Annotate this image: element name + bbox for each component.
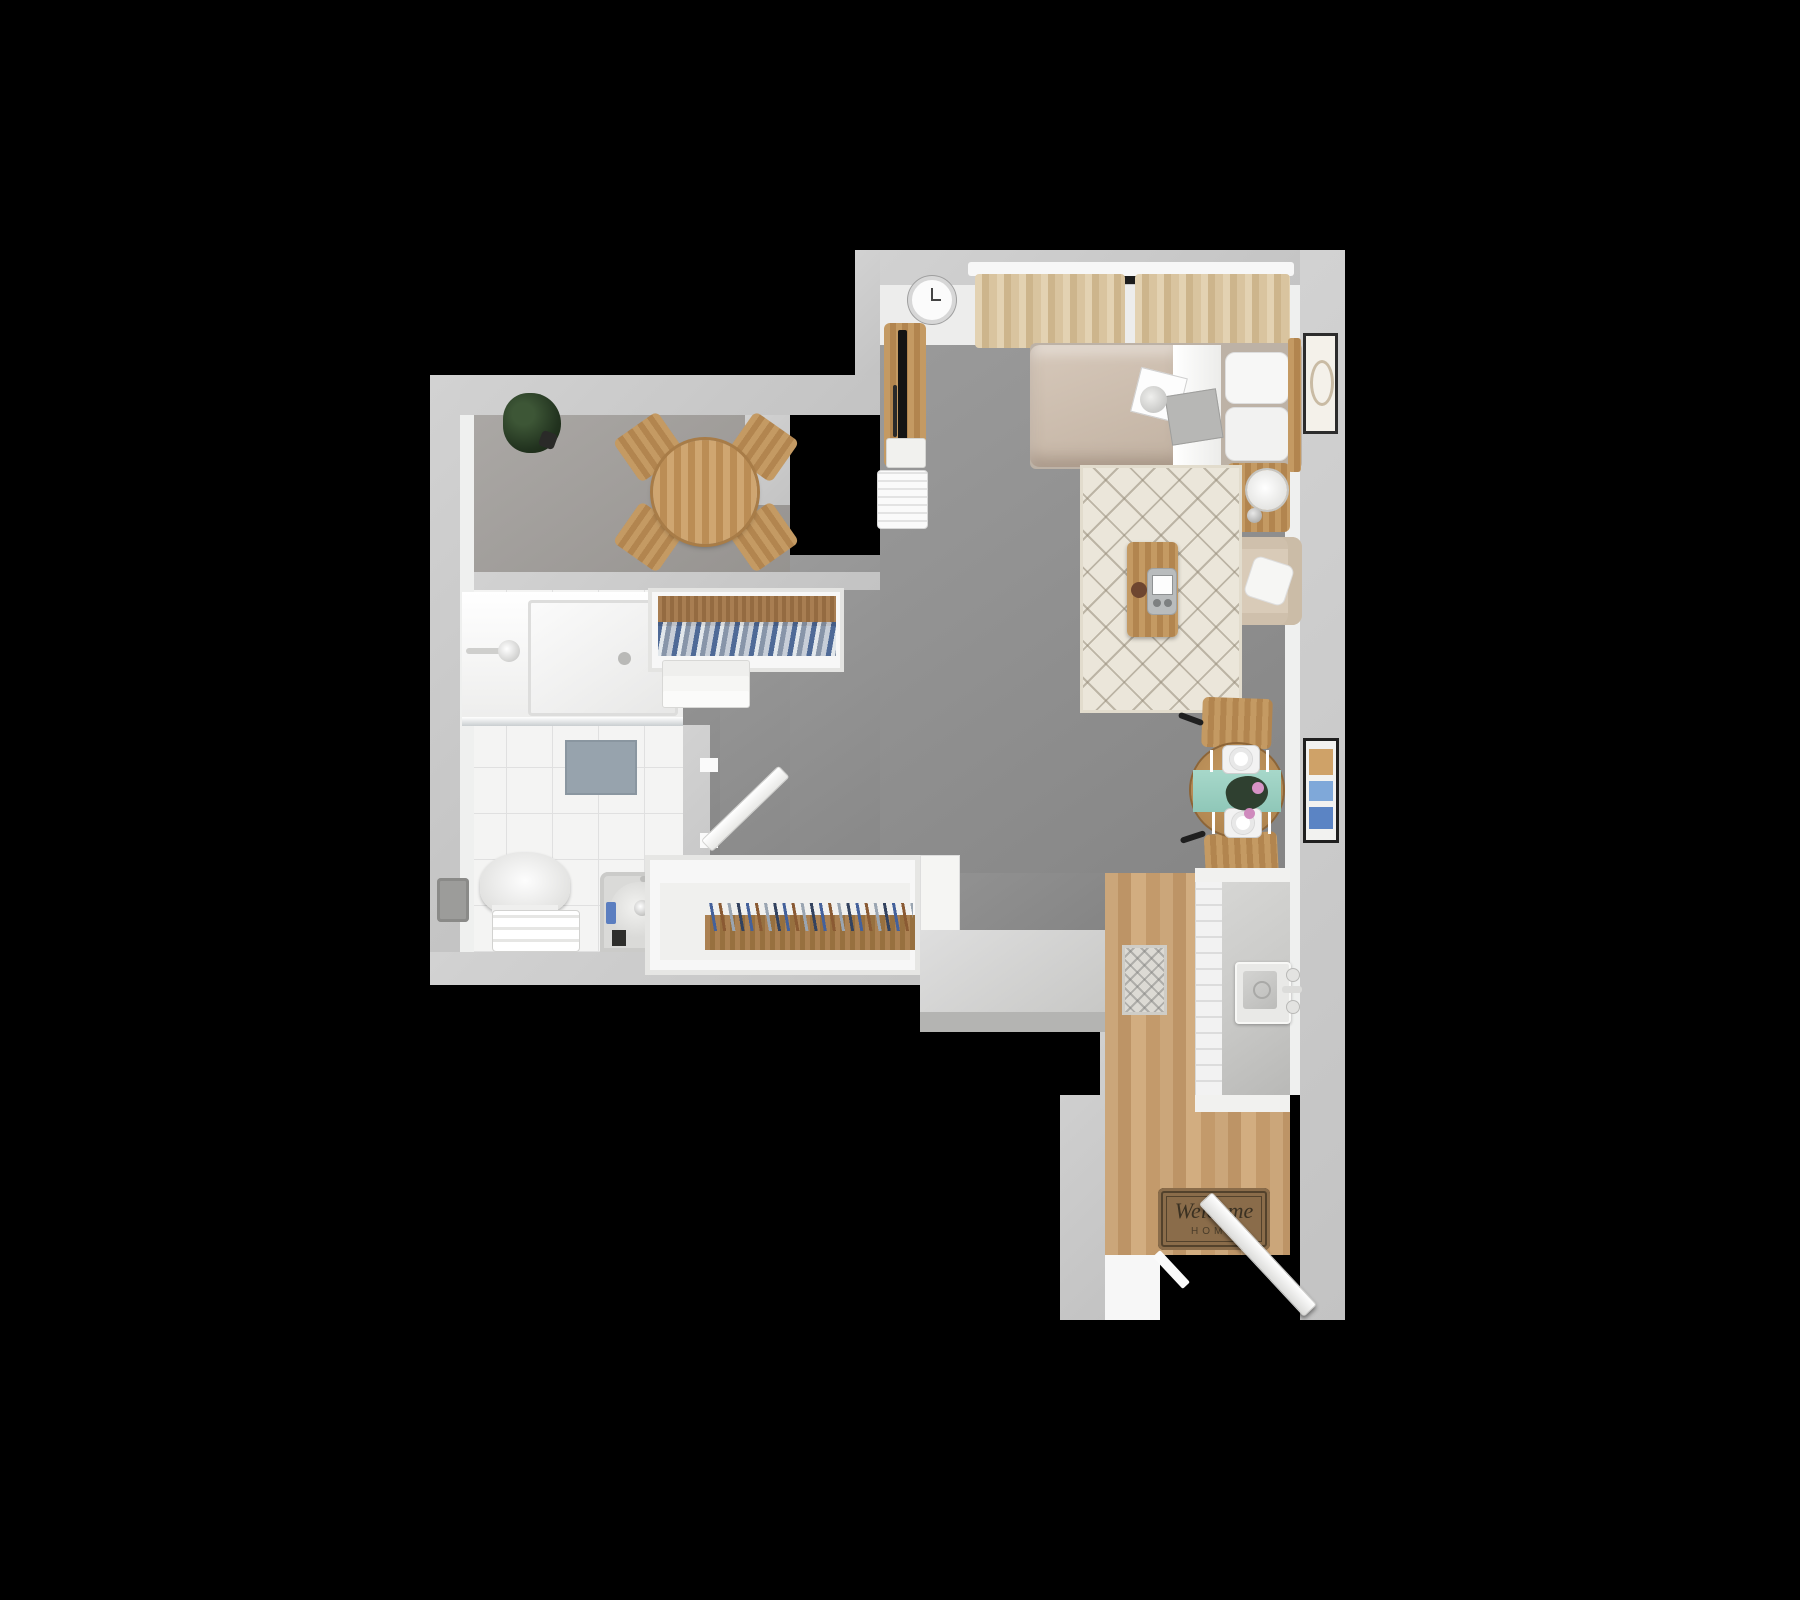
wall-art-dining-block-1 (1309, 749, 1333, 775)
pillow-bottom (1225, 407, 1289, 461)
bath-mat (565, 740, 637, 795)
table-lamp (1247, 470, 1287, 510)
wall-art-dining-block-3 (1309, 807, 1333, 829)
kitchen-cabinets (1195, 880, 1224, 1097)
bistro-chair-top (1201, 697, 1273, 749)
dresser (662, 660, 750, 708)
wall-clock (908, 276, 956, 324)
bowl-top (1229, 747, 1253, 771)
wall-art-dining (1303, 738, 1339, 843)
bedroom-west-wall-stub (855, 250, 880, 375)
counter-south-cap (1195, 1095, 1290, 1112)
fork-bottom (1212, 812, 1215, 834)
knife-top (1266, 750, 1269, 772)
sink-drain (1253, 981, 1271, 999)
gray-box-on-bed (1164, 388, 1223, 446)
clock-hour-hand (931, 299, 941, 301)
dining-north-wall (430, 375, 880, 415)
faucet-handle-bottom (1286, 1000, 1300, 1014)
curtain-right-panel (1135, 274, 1290, 348)
toilet-paper-holder (437, 878, 469, 922)
towel-bench (492, 910, 580, 952)
knife-bottom (1268, 812, 1271, 834)
flower-pink-2 (1244, 808, 1255, 819)
under-counter-shadow (920, 1032, 1100, 1095)
coaster (1131, 582, 1147, 598)
gadget-knob-left (1153, 599, 1161, 607)
half-wall-counter-front (920, 1012, 1105, 1032)
gadget-screen (1152, 575, 1173, 595)
headboard (1288, 338, 1301, 472)
lower-closet-hanging-clothes (708, 903, 913, 931)
shampoo-bottle (606, 902, 616, 924)
shower-glass-panel (462, 717, 683, 726)
shower-drain (618, 652, 631, 665)
kitchen-sink (1235, 962, 1291, 1024)
bathroom-door-jamb-top (700, 758, 718, 772)
floor-plan-scene: Welcome HOME (0, 0, 1800, 1600)
lamp-base-sphere (1247, 508, 1262, 523)
wall-art-bedroom (1303, 333, 1338, 434)
faucet-handle-top (1286, 968, 1300, 982)
heater-unit (877, 470, 928, 529)
entry-step (1105, 1255, 1160, 1320)
half-wall-counter (920, 930, 1105, 1012)
dining-table (653, 440, 757, 544)
refrigerator (1222, 1015, 1290, 1095)
toothbrush-cup (612, 930, 626, 946)
curtain-left-panel (975, 274, 1125, 348)
fork-top (1210, 750, 1213, 772)
kitchen-runner-rug (1122, 945, 1167, 1015)
magazine-pile (886, 438, 926, 468)
tv-mount-arm (893, 385, 897, 437)
wall-art-dining-block-2 (1309, 781, 1333, 801)
wall-art-bedroom-motif (1310, 360, 1334, 406)
flower-pink-1 (1252, 782, 1264, 794)
gadget-knob-right (1164, 599, 1172, 607)
pillow-top (1225, 352, 1289, 404)
tabletop-gadget (1147, 568, 1177, 615)
faucet-spout (1282, 986, 1302, 993)
counter-north-cap (1195, 868, 1290, 882)
upper-closet-hanging-clothes (658, 622, 836, 656)
shower-head (498, 640, 520, 662)
jar-on-bed (1140, 386, 1167, 413)
